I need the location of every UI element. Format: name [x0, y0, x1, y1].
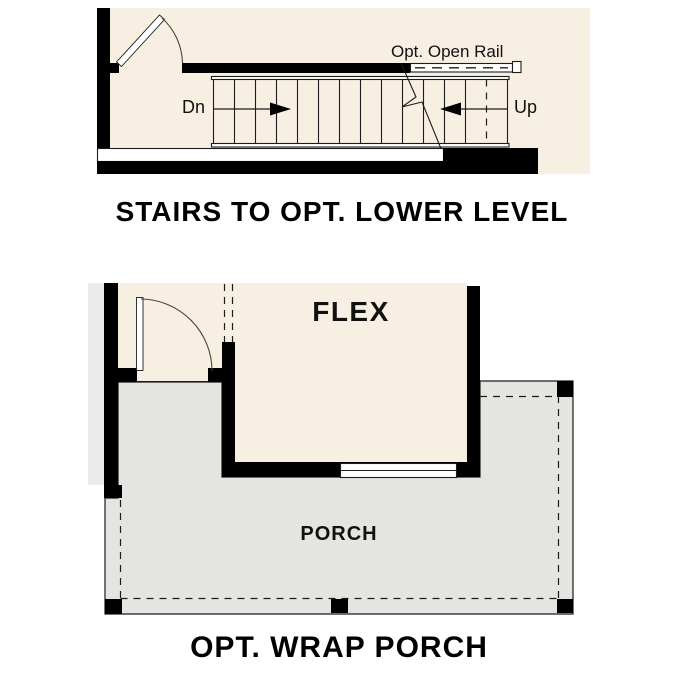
stair-top-stringer	[212, 77, 510, 80]
entry-wall-left-segment	[106, 368, 137, 382]
porch-diagram-title: OPT. WRAP PORCH	[105, 631, 573, 665]
flex-left-wall-end-cap	[104, 485, 122, 498]
stairs-diagram-title: STAIRS TO OPT. LOWER LEVEL	[92, 196, 592, 228]
entry-door-leaf	[137, 298, 144, 371]
stair-bottom-stringer	[212, 144, 510, 148]
flex-divider-wall	[222, 342, 235, 464]
stairs-left-wall	[97, 8, 110, 149]
stairs-bottom-right-wall	[443, 148, 538, 174]
stairs-door-jamb-wall	[110, 63, 119, 73]
stairs-landing-strip	[98, 149, 444, 162]
flex-right-wall	[467, 286, 480, 477]
stairs-bottom-wall	[97, 161, 444, 174]
floorplan-page: Opt. Open Rail Dn Up STAIRS TO OPT. LOWE…	[0, 0, 687, 687]
stairs-up-label: Up	[514, 97, 537, 117]
stairs-section-drawing	[97, 8, 590, 174]
open-rail-end-cap	[513, 62, 522, 73]
open-rail	[411, 64, 513, 73]
porch-left-wrap-strip	[88, 283, 104, 485]
porch-section-drawing	[88, 283, 573, 614]
flex-room-label: FLEX	[235, 297, 467, 327]
stairs-top-wall	[182, 63, 410, 73]
stairs-down-label: Dn	[182, 97, 205, 117]
flex-window	[341, 464, 457, 478]
flex-left-wall	[104, 283, 118, 485]
open-rail-label: Opt. Open Rail	[391, 42, 503, 61]
floorplan-drawing	[0, 0, 687, 687]
porch-room-label: PORCH	[105, 523, 573, 545]
